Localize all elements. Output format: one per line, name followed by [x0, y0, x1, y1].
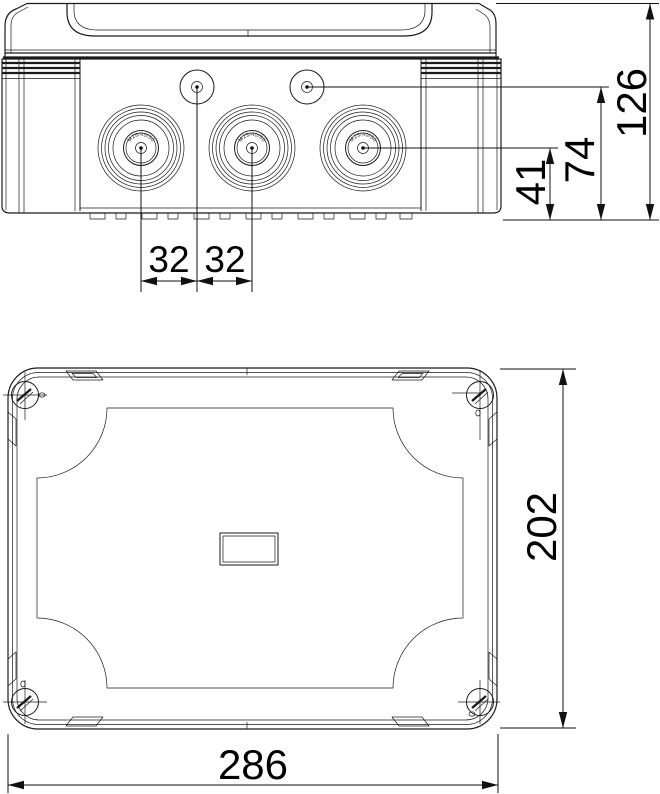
technical-drawing: M25/40/50 M25/40/50 M25/40/50: [0, 0, 660, 794]
dim-value: 286: [218, 741, 288, 788]
dim-value: 126: [608, 68, 655, 138]
drawing-sheet: M25/40/50 M25/40/50 M25/40/50: [0, 0, 660, 794]
dim-entry-pitch-left: 32: [141, 239, 197, 285]
dim-value: 202: [518, 492, 565, 562]
dim-value: 32: [148, 239, 189, 280]
dim-entry-pitch-right: 32: [197, 239, 252, 285]
dim-value: 41: [507, 159, 554, 206]
dim-value: 74: [556, 137, 603, 184]
sheet-background: [0, 0, 660, 794]
dim-value: 32: [204, 239, 245, 280]
